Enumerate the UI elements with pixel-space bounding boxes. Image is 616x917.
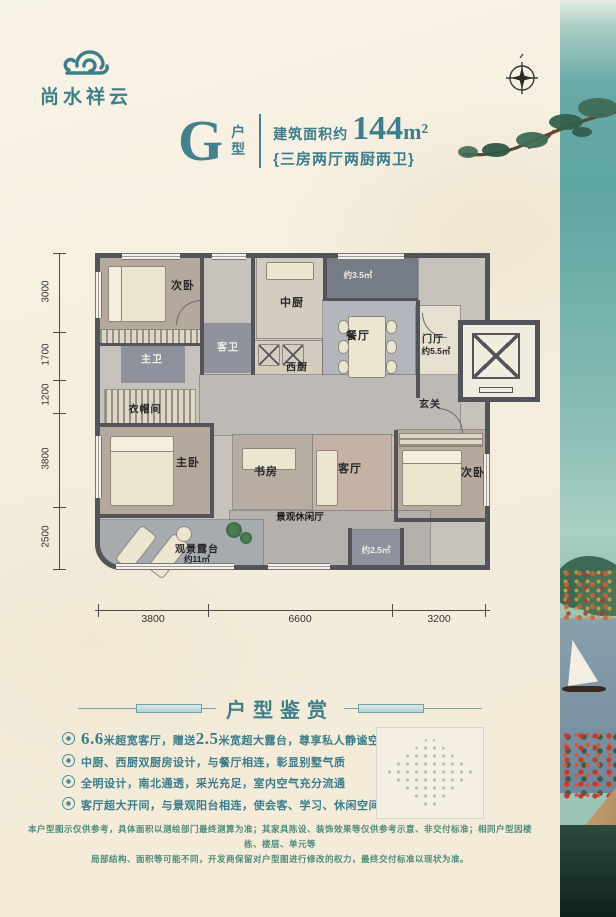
area-line: 建筑面积约 144 m² xyxy=(273,114,428,145)
disclaimer-line-1: 本户型图示仅供参考，具体面积以测绘部门最终测算为准；其家具陈设、装饰效果等仅供参… xyxy=(20,822,540,852)
window xyxy=(483,454,490,506)
landscape-art-strip xyxy=(560,0,616,917)
dimension-chain-left: 3000 1700 1200 3800 2500 xyxy=(40,253,70,570)
dim-label: 3000 xyxy=(41,277,52,307)
room-label-foyer: 门厅 xyxy=(422,331,444,346)
area-label-balcony-small: 约2.5㎡ xyxy=(362,544,391,556)
brand-logo: 尚水祥云 xyxy=(26,46,146,109)
area-label-terrace: 约11㎡ xyxy=(184,553,210,565)
room-label-hallway: 玄关 xyxy=(419,396,441,411)
sofa xyxy=(316,450,338,506)
window xyxy=(95,272,102,318)
room-label-guest-bath: 客卫 xyxy=(217,339,239,354)
elevator-shaft xyxy=(458,320,540,402)
dim-label: 2500 xyxy=(41,522,52,552)
room-label-west-kitchen: 西厨 xyxy=(286,359,308,374)
wardrobe-strip xyxy=(400,434,482,446)
stove-unit xyxy=(258,344,280,366)
strip-red-flowers xyxy=(560,730,616,800)
bullet-circle-icon xyxy=(62,775,75,788)
dim-label: 1700 xyxy=(41,340,52,370)
plant xyxy=(240,532,252,544)
area-value: 144 xyxy=(352,114,403,144)
bullet-circle-icon xyxy=(62,797,75,810)
compass-icon xyxy=(500,52,544,100)
layout-description: {三房两厅两厨两卫} xyxy=(273,148,428,169)
header-decor-left xyxy=(78,704,216,713)
room-label-mid-kitchen: 中厨 xyxy=(280,294,304,310)
bullet-circle-icon xyxy=(62,732,75,745)
brand-name: 尚水祥云 xyxy=(26,82,146,109)
pillow xyxy=(108,266,122,322)
area-label-foyer: 约5.5㎡ xyxy=(422,345,451,357)
floorplan-poster: 尚水祥云 G 户 型 建筑面积约 144 m² {三房两厅两厨两卫} xyxy=(0,0,616,917)
dining-table xyxy=(348,316,386,378)
window xyxy=(95,436,102,498)
room-label-leisure-hall: 景观休闲厅 xyxy=(276,509,324,523)
section-title: 户型鉴赏 xyxy=(226,694,334,723)
disclaimer-text: 本户型图示仅供参考，具体面积以测绘部门最终测算为准；其家具陈设、装饰效果等仅供参… xyxy=(20,822,540,867)
floor-plan: 次卧 中厨 约3.5㎡ 餐厅 门厅 约5.5㎡ 客卫 西厨 主卫 衣帽间 玄关 … xyxy=(95,253,490,570)
unit-type-label: 户 型 xyxy=(231,124,245,158)
area-prefix: 建筑面积约 xyxy=(273,124,348,144)
dimension-chain-bottom: 3800 6600 3200 xyxy=(95,596,490,630)
dim-label: 3800 xyxy=(41,444,52,474)
room-label-living: 客厅 xyxy=(338,460,362,476)
room-label-bedroom-right: 次卧 xyxy=(461,464,485,480)
auspicious-cloud-icon xyxy=(57,46,115,80)
section-header: 户型鉴赏 xyxy=(0,694,560,723)
bullet-circle-icon xyxy=(62,754,75,767)
window xyxy=(338,253,404,260)
feature-number: 2.5 xyxy=(196,729,219,748)
title-divider xyxy=(259,114,261,168)
room-label-cloakroom: 衣帽间 xyxy=(129,401,162,416)
unit-title-block: G 户 型 建筑面积约 144 m² {三房两厅两厨两卫} xyxy=(178,112,428,170)
area-unit: m² xyxy=(403,119,428,145)
window xyxy=(122,253,180,260)
header-decor-right xyxy=(344,704,482,713)
chair xyxy=(386,320,397,334)
disclaimer-line-2: 局部结构、面积等可能不同，开发商保留对户型图进行修改的权力，最终交付标准以现状为… xyxy=(20,852,540,867)
room-label-master-bedroom: 主卧 xyxy=(176,454,200,470)
dim-label: 3200 xyxy=(427,613,450,625)
terrace-railing xyxy=(116,563,234,570)
dim-label: 6600 xyxy=(288,613,311,625)
unit-type-letter: G xyxy=(178,112,223,170)
elevator-car xyxy=(472,333,520,379)
chair xyxy=(386,360,397,374)
room-label-master-bath: 主卫 xyxy=(141,351,163,366)
chair xyxy=(386,340,397,354)
dim-label: 3800 xyxy=(141,613,164,625)
room-label-bedroom-topleft: 次卧 xyxy=(171,277,195,293)
strip-autumn-trees xyxy=(560,568,616,620)
area-label-balcony-top: 约3.5㎡ xyxy=(344,269,373,281)
window xyxy=(268,563,330,570)
pillow xyxy=(110,436,174,452)
window xyxy=(212,253,246,260)
cloud-pattern-watermark xyxy=(376,727,484,819)
boat-hull xyxy=(562,686,606,692)
dim-label: 1200 xyxy=(41,380,52,410)
kitchen-sink xyxy=(266,262,314,280)
room-label-dining: 餐厅 xyxy=(346,327,370,343)
pillow xyxy=(402,450,462,464)
strip-dark-foreground xyxy=(560,825,616,917)
feature-number: 6.6 xyxy=(81,729,104,748)
chair xyxy=(338,360,349,374)
room-label-study: 书房 xyxy=(254,463,278,479)
